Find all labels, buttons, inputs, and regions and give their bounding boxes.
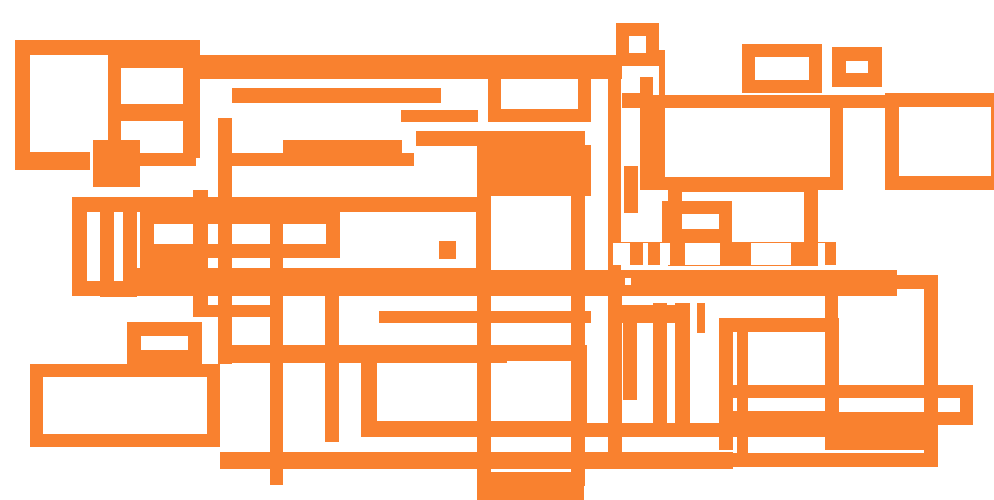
white-patch-4 <box>660 243 670 265</box>
solid-bar-24 <box>218 118 232 364</box>
abstract-rectangles-canvas <box>0 0 994 500</box>
solid-bar-3 <box>401 110 478 122</box>
solid-bar-14 <box>477 478 584 500</box>
solid-bar-33 <box>719 425 733 450</box>
solid-bar-23 <box>439 241 456 259</box>
solid-bar-35 <box>193 190 208 317</box>
solid-bar-4 <box>416 131 578 146</box>
solid-bar-30 <box>653 303 667 425</box>
solid-bar-25 <box>270 212 283 485</box>
solid-bar-1 <box>192 55 622 79</box>
rectangle-outline-22 <box>127 322 202 364</box>
white-patch-6 <box>643 243 648 265</box>
rectangle-outline-6 <box>832 47 882 87</box>
solid-bar-7 <box>15 152 90 170</box>
white-patch-7 <box>625 278 631 285</box>
white-patch-5 <box>818 243 825 265</box>
white-patch-3 <box>613 243 630 265</box>
solid-bar-6 <box>232 153 414 166</box>
rectangle-outline-5 <box>742 44 822 93</box>
solid-bar-8 <box>93 140 140 187</box>
solid-bar-12 <box>362 423 938 437</box>
solid-bar-31 <box>675 303 690 435</box>
rectangle-outline-14 <box>662 201 732 242</box>
solid-bar-27 <box>659 50 665 190</box>
rectangle-outline-11 <box>100 197 137 297</box>
solid-bar-10 <box>843 95 885 108</box>
solid-bar-37 <box>623 310 637 400</box>
solid-bar-19 <box>491 145 591 196</box>
solid-bar-20 <box>140 258 200 272</box>
rectangle-outline-4 <box>616 23 659 66</box>
solid-bar-15 <box>491 270 897 296</box>
solid-bar-32 <box>697 303 705 333</box>
solid-bar-13 <box>220 452 733 469</box>
rectangle-outline-9 <box>885 93 994 190</box>
rectangle-outline-8 <box>650 95 843 190</box>
solid-bar-11 <box>220 345 507 363</box>
solid-bar-2 <box>232 88 441 103</box>
solid-bar-18 <box>379 311 591 323</box>
solid-bar-29 <box>325 296 339 442</box>
white-patch-2 <box>751 243 791 265</box>
solid-bar-36 <box>624 166 638 213</box>
rectangle-outline-12 <box>140 210 340 258</box>
solid-bar-26 <box>640 77 653 190</box>
rectangle-outline-21 <box>30 364 220 447</box>
white-patch-1 <box>685 243 720 265</box>
solid-bar-34 <box>737 332 748 458</box>
